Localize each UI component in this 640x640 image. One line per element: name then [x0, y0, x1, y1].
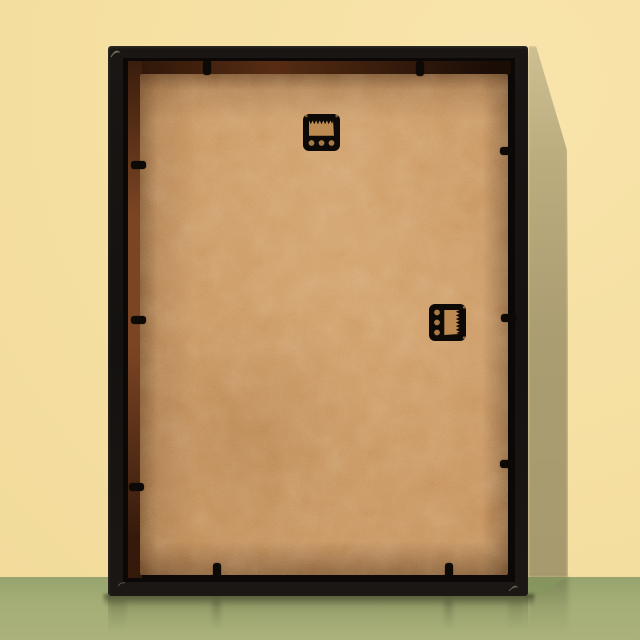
retainer-clip-right: [500, 460, 515, 468]
retainer-clip-top: [203, 60, 211, 75]
retainer-clips-layer: [108, 46, 528, 596]
reflection-streak: [212, 600, 221, 630]
retainer-clip-left: [131, 161, 146, 169]
retainer-clip-top: [416, 61, 424, 76]
retainer-clip-bottom: [445, 563, 453, 578]
photo-back-of-picture-frame: [0, 0, 640, 640]
retainer-clip-right: [501, 314, 516, 322]
reflection-streak: [110, 600, 126, 630]
frame-floor-reflection: [108, 596, 528, 640]
reflection-streak: [508, 600, 524, 630]
picture-frame-back: [108, 46, 528, 596]
retainer-clip-bottom: [213, 563, 221, 578]
retainer-clip-left: [129, 483, 144, 491]
retainer-clip-left: [131, 316, 146, 324]
reflection-streak: [444, 600, 453, 630]
retainer-clip-right: [500, 147, 515, 155]
